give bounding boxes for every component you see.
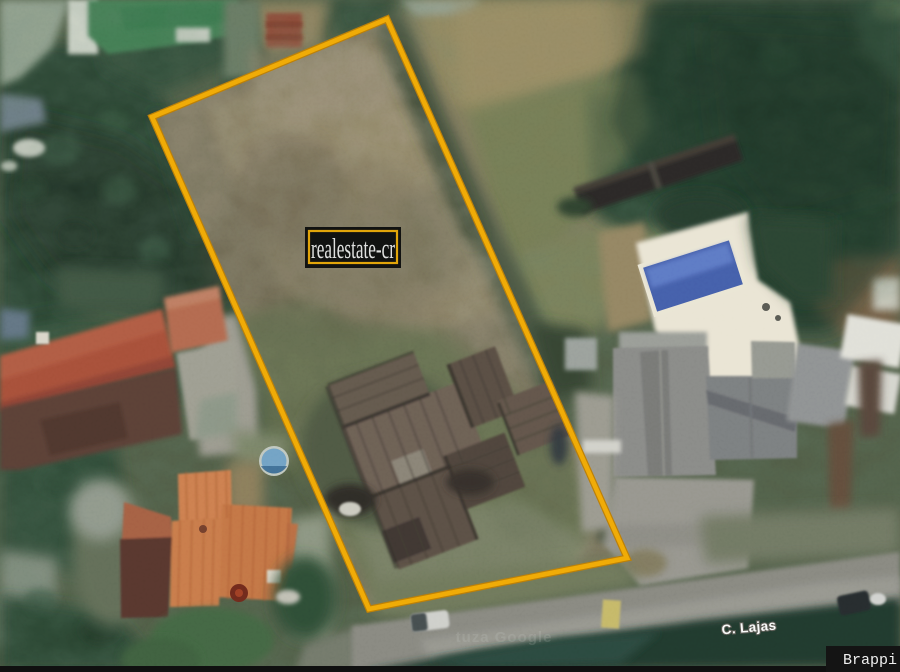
svg-text:Brappi: Brappi: [843, 652, 897, 669]
